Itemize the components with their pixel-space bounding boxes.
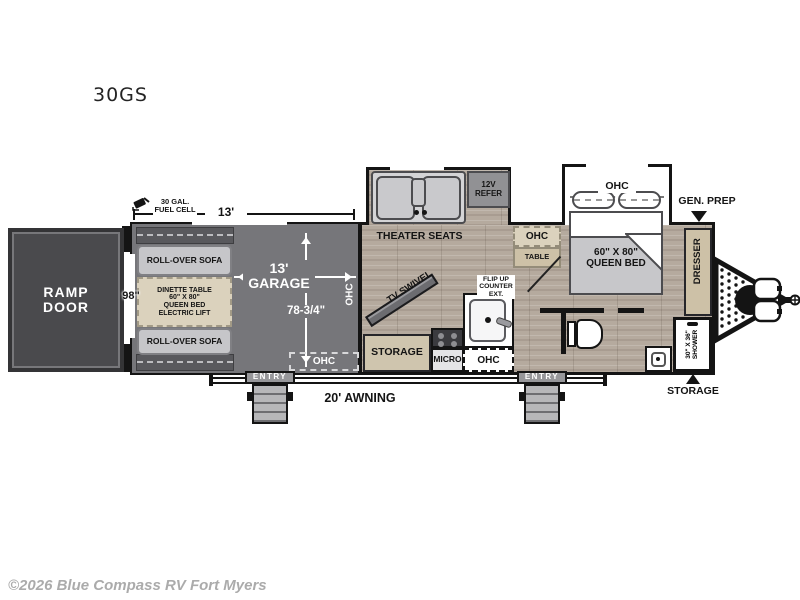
step-bracket: [560, 392, 565, 401]
sofa-label: ROLL-OVER SOFA: [147, 337, 223, 346]
sink-drain: [656, 357, 660, 361]
toilet-tank: [567, 321, 576, 347]
window: [192, 221, 287, 225]
shower-head-icon: [687, 322, 698, 326]
floorplan-30gs: 30GS 13' 30 GAL. FUEL CELL RAMP DOOR 98"…: [0, 0, 800, 600]
kitchen-ohc: OHC: [463, 348, 514, 372]
bath-wall: [561, 308, 566, 354]
window: [390, 166, 444, 170]
ohc-label: OHC: [477, 355, 499, 366]
garage-width-arrow: [305, 233, 307, 367]
entry-steps: [252, 384, 288, 424]
step-bracket: [288, 392, 293, 401]
cupholder: [422, 210, 427, 215]
theater-seat-right: [422, 176, 461, 220]
sink-drain: [485, 317, 491, 323]
cupholder: [414, 210, 419, 215]
dinette-ohc: OHC: [513, 226, 561, 247]
bath-sink: [645, 346, 672, 372]
storage-arrow-icon: [686, 374, 700, 384]
entry-door-garage: ENTRY: [245, 371, 295, 384]
step-bracket: [247, 392, 252, 401]
front-storage-label: STORAGE: [658, 386, 728, 398]
theater-seats: [371, 171, 466, 224]
refrigerator: 12V REFER: [467, 171, 510, 208]
micro-label: MICRO: [433, 355, 461, 364]
garage-ohc-rear: OHC: [289, 352, 359, 371]
sofa-rail-top: [136, 227, 234, 244]
fuel-pump-icon: [131, 194, 151, 211]
kitchen-counter: [463, 293, 514, 348]
dinette-label: DINETTE TABLE 60" X 80" QUEEN BED ELECTR…: [157, 287, 212, 318]
entry-label: ENTRY: [525, 373, 559, 382]
ohc-label: OHC: [313, 356, 335, 367]
theater-seat-left: [376, 176, 415, 220]
sofa-label: ROLL-OVER SOFA: [147, 256, 223, 265]
table-label: TABLE: [525, 253, 549, 261]
sofa-rail-bottom: [136, 354, 234, 371]
theater-console: [411, 178, 426, 207]
bath-wall: [618, 308, 644, 313]
garage-length-dimension: 13': [205, 206, 247, 219]
fuel-cell-label: 30 GAL. FUEL CELL: [153, 198, 197, 215]
theater-seats-label: THEATER SEATS: [372, 231, 467, 243]
window: [586, 163, 648, 167]
trailer-hitch: [712, 252, 800, 348]
garage-ohc-side-label: OHC: [345, 275, 356, 315]
garage-wall: [358, 224, 362, 373]
toilet: [576, 319, 603, 349]
awning-end-cap: [603, 375, 607, 386]
refer-label: 12V REFER: [475, 181, 502, 199]
bath-wall: [540, 308, 604, 313]
storage-cabinet: STORAGE: [363, 334, 431, 372]
gen-prep-label: GEN. PREP: [670, 196, 744, 208]
rear-width-dimension: 98": [116, 290, 146, 302]
entry-door-main: ENTRY: [517, 371, 567, 384]
bedroom-ohc-label: OHC: [598, 181, 636, 193]
awning-label: 20' AWNING: [315, 392, 405, 406]
entry-label: ENTRY: [253, 373, 287, 382]
pillow: [572, 191, 615, 209]
shower: 30" X 36" SHOWER: [673, 317, 712, 372]
dealer-watermark: ©2026 Blue Compass RV Fort Myers: [8, 577, 267, 594]
ohc-label: OHC: [526, 231, 548, 242]
gen-prep-arrow-icon: [691, 211, 707, 222]
dinette-table: DINETTE TABLE 60" X 80" QUEEN BED ELECTR…: [137, 277, 232, 327]
pillow: [618, 191, 661, 209]
roll-over-sofa-bottom: ROLL-OVER SOFA: [137, 328, 232, 355]
burners: [438, 333, 444, 339]
dresser-label: DRESSER: [693, 260, 703, 284]
cooktop: [431, 328, 464, 348]
garage-width-dimension: 78-3/4": [278, 305, 334, 318]
ramp-door-label: RAMP DOOR: [43, 285, 89, 316]
roll-over-sofa-top: ROLL-OVER SOFA: [137, 245, 232, 276]
entry-steps: [524, 384, 560, 424]
dresser: DRESSER: [684, 228, 712, 316]
microwave: MICRO: [431, 348, 464, 372]
queen-bed-label: 60" X 80" QUEEN BED: [578, 247, 654, 269]
model-title: 30GS: [93, 84, 148, 106]
awning-end-cap: [209, 375, 213, 386]
ramp-door: RAMP DOOR: [8, 228, 124, 372]
step-bracket: [519, 392, 524, 401]
shower-label: 30" X 36" SHOWER: [685, 328, 700, 361]
flip-up-counter-label: FLIP UP COUNTER EXT.: [477, 275, 515, 299]
storage-label: STORAGE: [371, 347, 423, 359]
garage-label: 13' GARAGE: [243, 260, 315, 293]
